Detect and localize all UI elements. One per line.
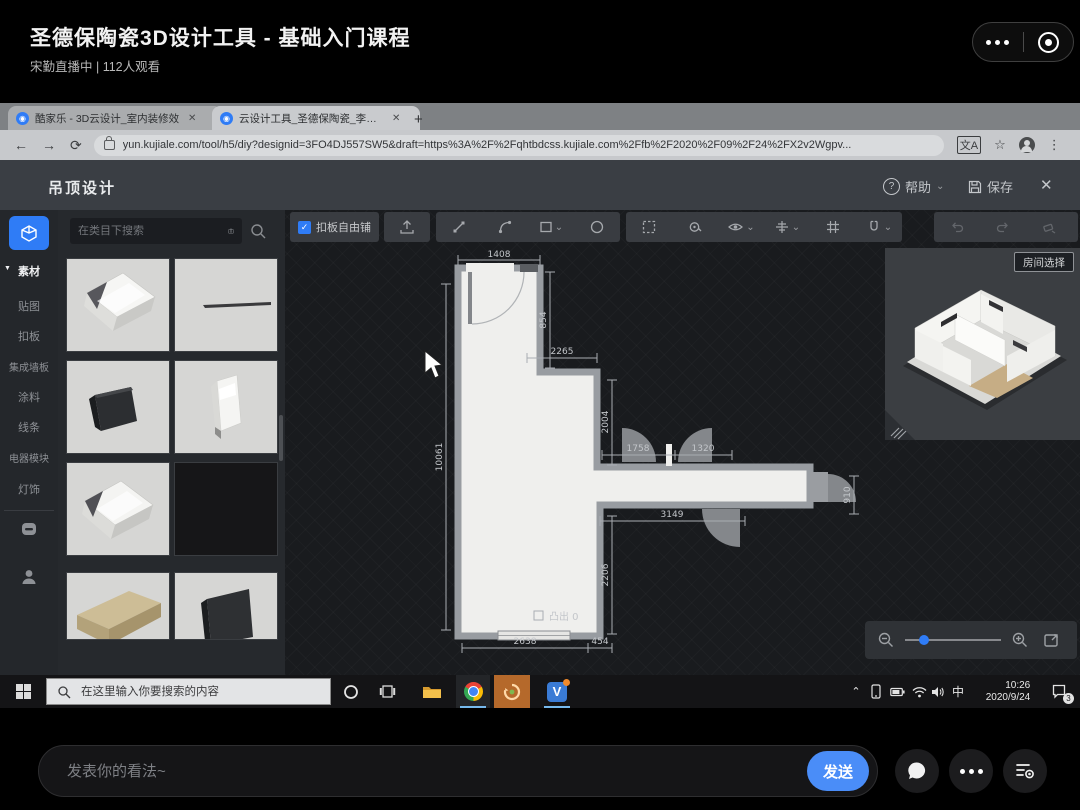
danmaku-list-eye-icon xyxy=(1014,761,1036,781)
kujiale-client-icon xyxy=(502,682,522,702)
more-actions-button[interactable] xyxy=(949,749,993,793)
sidebar-item-electric[interactable]: 电器模块 xyxy=(0,450,58,465)
browser-tab-2-active[interactable]: ◉ 云设计工具_圣德保陶瓷_李凡-保 ✕ xyxy=(212,106,420,130)
sidebar-item-material[interactable]: ▼ 素材 xyxy=(0,263,58,279)
back-button[interactable]: ← xyxy=(14,137,28,153)
material-thumb-black-swatch[interactable] xyxy=(174,462,278,556)
chevron-down-icon[interactable]: ⌄ xyxy=(792,222,800,233)
snap-magnet-button[interactable]: ⌄ xyxy=(856,212,902,242)
clock-date: 2020/9/24 xyxy=(986,692,1031,704)
tray-wifi-icon[interactable] xyxy=(910,675,928,708)
3d-preview-panel[interactable]: 房间选择 xyxy=(885,248,1080,440)
kujiale-favicon: ◉ xyxy=(16,112,29,125)
more-icon xyxy=(960,769,983,774)
svg-text:1408: 1408 xyxy=(488,250,511,260)
sidebar-item-molding[interactable]: 线条 xyxy=(0,419,58,435)
miniprogram-capsule xyxy=(972,22,1074,62)
help-icon: ? xyxy=(883,178,900,195)
profile-avatar[interactable] xyxy=(1019,137,1035,153)
clear-selection-button[interactable] xyxy=(1026,212,1072,242)
sidebar-item-label: 贴图 xyxy=(18,301,40,313)
chat-bubble-icon xyxy=(906,760,928,782)
svg-text:2638: 2638 xyxy=(514,637,537,647)
freelay-toggle[interactable]: ✓ 扣板自由铺 xyxy=(290,212,379,242)
arc-tool-button[interactable] xyxy=(482,212,528,242)
help-label: 帮助 xyxy=(905,177,931,196)
materials-panel: ◀ 1 /250 页 ▶ xyxy=(58,210,285,675)
sidebar-item-lighting[interactable]: 灯饰 xyxy=(0,481,58,497)
chevron-down-icon[interactable]: ⌄ xyxy=(555,222,563,233)
svg-text:凸出 0: 凸出 0 xyxy=(549,610,579,623)
sidebar-item-label: 灯饰 xyxy=(18,484,40,496)
door-opening-top xyxy=(466,263,514,273)
taskbar-clock[interactable]: 10:26 2020/9/24 xyxy=(975,675,1041,708)
notification-badge: 3 xyxy=(1063,693,1074,704)
material-thumb-dark-board[interactable] xyxy=(174,572,278,640)
upload-button[interactable] xyxy=(384,212,430,242)
mouse-cursor xyxy=(423,350,445,380)
fit-view-icon[interactable] xyxy=(1043,631,1061,649)
forward-button[interactable]: → xyxy=(42,137,56,153)
measure-tool-button[interactable] xyxy=(672,212,718,242)
kujiale-client-button[interactable] xyxy=(494,675,530,708)
ime-indicator[interactable]: 中 xyxy=(948,675,968,708)
zoom-slider[interactable] xyxy=(905,639,1001,641)
material-thumb-dark-panel[interactable] xyxy=(66,360,170,454)
search-icon[interactable] xyxy=(250,223,267,240)
svg-text:2206: 2206 xyxy=(601,563,611,586)
user-icon[interactable] xyxy=(20,568,38,586)
url-field[interactable]: yun.kujiale.com/tool/h5/diy?designid=3FO… xyxy=(94,135,944,156)
tool-close-button[interactable]: ✕ xyxy=(1040,176,1053,194)
chrome-icon xyxy=(464,682,483,701)
zoom-control-bar xyxy=(865,621,1077,659)
search-input[interactable] xyxy=(70,225,228,237)
tray-battery-icon[interactable] xyxy=(888,675,906,708)
tool-title: 吊顶设计 xyxy=(48,177,116,198)
draw-tools-group: ⌄ xyxy=(436,212,620,242)
cube-3d-icon xyxy=(20,224,38,242)
svg-text:1320: 1320 xyxy=(692,444,715,454)
door-swing-bottom xyxy=(702,509,740,547)
sidebar-item-label: 集成墙板 xyxy=(9,363,49,374)
rectangle-tool-button[interactable]: ⌄ xyxy=(528,212,574,242)
left-rail: ▼ 素材 贴图 扣板 集成墙板 涂料 线条 电器模块 灯饰 xyxy=(0,210,58,675)
material-thumb-crown-molding[interactable] xyxy=(66,258,170,352)
floorplan-drawing[interactable]: 1408 854 2265 2004 10061 1758 1320 910 3… xyxy=(430,248,860,673)
tray-expand-chevron[interactable]: ⌃ xyxy=(848,675,864,708)
sidebar-item-paint[interactable]: 涂料 xyxy=(0,389,58,405)
reload-button[interactable]: ⟳ xyxy=(70,137,82,154)
comment-input-bar[interactable]: 发送 xyxy=(38,745,878,797)
live-course-title: 圣德保陶瓷3D设计工具 - 基础入门课程 xyxy=(30,22,411,52)
screen: 圣德保陶瓷3D设计工具 - 基础入门课程 宋勤直播中 | 112人观看 ◉ 酷家… xyxy=(0,0,1080,810)
tool-header: 吊顶设计 ? 帮助 ⌄ 保存 ✕ xyxy=(0,160,1080,210)
taskbar-search-box[interactable] xyxy=(46,678,331,705)
chrome-button[interactable] xyxy=(456,675,490,708)
browser-tabstrip: ◉ 酷家乐 - 3D云设计_室内装修效 ✕ ◉ 云设计工具_圣德保陶瓷_李凡-保… xyxy=(0,103,1080,130)
preview-resize-handle[interactable] xyxy=(885,410,915,440)
svg-text:454: 454 xyxy=(591,637,608,647)
svg-text:2265: 2265 xyxy=(551,347,574,357)
zoom-slider-thumb[interactable] xyxy=(919,635,929,645)
url-text: yun.kujiale.com/tool/h5/diy?designid=3FO… xyxy=(123,139,852,151)
svg-text:10061: 10061 xyxy=(435,443,445,472)
material-thumb-thin-line[interactable] xyxy=(174,258,278,352)
tray-phone-icon[interactable] xyxy=(868,675,884,708)
v-app-icon: V xyxy=(547,682,567,702)
zoom-out-icon[interactable] xyxy=(877,631,895,649)
chat-toggle-button[interactable] xyxy=(895,749,939,793)
svg-text:1758: 1758 xyxy=(627,444,650,454)
live-status: 宋勤直播中 | 112人观看 xyxy=(30,56,160,75)
circle-tool-button[interactable] xyxy=(574,212,620,242)
history-tools-group xyxy=(934,212,1078,242)
save-label: 保存 xyxy=(987,177,1013,196)
rail-divider xyxy=(4,510,54,511)
tab-label: 云设计工具_圣德保陶瓷_李凡-保 xyxy=(239,111,384,126)
view-tools-group: ⌄ ⌄ ⌄ xyxy=(626,212,902,242)
design-canvas[interactable]: ✓ 扣板自由铺 ⌄ xyxy=(285,210,1080,675)
door-block-end xyxy=(810,472,828,502)
chevron-down-icon: ⌄ xyxy=(936,181,944,192)
v-app-button[interactable]: V xyxy=(540,675,574,708)
visibility-button[interactable]: ⌄ xyxy=(718,212,764,242)
task-view-button[interactable] xyxy=(374,675,400,708)
marquee-select-button[interactable] xyxy=(626,212,672,242)
sidebar-item-panel[interactable]: 扣板 xyxy=(0,328,58,344)
category-search-box[interactable] xyxy=(70,218,242,244)
chevron-down-icon[interactable]: ⌄ xyxy=(884,222,892,233)
material-thumb-baseboard[interactable] xyxy=(174,360,278,454)
translate-icon[interactable]: 文A xyxy=(957,136,981,154)
tab-close-icon[interactable]: ✕ xyxy=(392,113,400,124)
file-explorer-button[interactable] xyxy=(416,675,448,708)
kujiale-favicon: ◉ xyxy=(220,112,233,125)
more-menu-button[interactable] xyxy=(973,23,1023,61)
svg-text:3149: 3149 xyxy=(661,510,684,520)
comment-input[interactable] xyxy=(65,762,807,781)
sidebar-item-label: 电器模块 xyxy=(9,454,49,465)
search-icon xyxy=(57,685,71,699)
panel-scrollbar[interactable] xyxy=(279,415,283,461)
material-thumb-wood-plank[interactable] xyxy=(66,572,170,640)
danmaku-toggle-button[interactable] xyxy=(1003,749,1047,793)
browser-tab-1[interactable]: ◉ 酷家乐 - 3D云设计_室内装修效 ✕ xyxy=(8,106,222,130)
more-icon xyxy=(986,40,1009,45)
save-button[interactable]: 保存 xyxy=(968,177,1013,196)
tray-volume-icon[interactable] xyxy=(930,675,946,708)
chevron-down-icon[interactable]: ⌄ xyxy=(746,222,754,233)
sidebar-item-label: 素材 xyxy=(18,266,40,278)
svg-text:854: 854 xyxy=(539,311,549,328)
send-button[interactable]: 发送 xyxy=(807,751,869,791)
taskbar-search-input[interactable] xyxy=(79,685,330,699)
browser-menu-icon[interactable]: ⋮ xyxy=(1048,137,1061,153)
sidebar-item-label: 线条 xyxy=(18,422,40,434)
caret-down-icon: ▼ xyxy=(4,265,11,272)
bookmark-star-icon[interactable]: ☆ xyxy=(994,137,1006,153)
sidebar-item-label: 扣板 xyxy=(18,331,40,343)
notification-center-button[interactable]: 3 xyxy=(1046,675,1074,708)
exit-button[interactable] xyxy=(1024,23,1074,61)
window-top xyxy=(520,264,538,272)
clock-time: 10:26 xyxy=(986,680,1031,692)
svg-text:910: 910 xyxy=(843,486,853,503)
tab-close-icon[interactable]: ✕ xyxy=(188,113,196,124)
door-leaf xyxy=(468,272,472,324)
browser-addressbar: ← → ⟳ yun.kujiale.com/tool/h5/diy?design… xyxy=(0,130,1080,160)
undo-button[interactable] xyxy=(934,212,980,242)
svg-text:2004: 2004 xyxy=(601,410,611,433)
new-tab-button[interactable]: + xyxy=(414,111,423,128)
image-search-camera-icon[interactable] xyxy=(228,225,234,237)
sidebar-item-label: 涂料 xyxy=(18,392,40,404)
upload-tool-group xyxy=(384,212,430,242)
tab-label: 酷家乐 - 3D云设计_室内装修效 xyxy=(35,111,180,126)
line-tool-button[interactable] xyxy=(436,212,482,242)
windows-taskbar: V ⌃ 中 10:26 2020/9/24 3 xyxy=(0,675,1080,708)
align-button[interactable]: ⌄ xyxy=(764,212,810,242)
checkbox-checked-icon[interactable]: ✓ xyxy=(298,221,311,234)
grid-button[interactable] xyxy=(810,212,856,242)
package-icon[interactable] xyxy=(20,520,38,538)
lock-icon xyxy=(104,140,115,150)
material-thumb-crown-molding-alt[interactable] xyxy=(66,462,170,556)
room-select-button[interactable]: 房间选择 xyxy=(1014,252,1074,272)
start-button[interactable] xyxy=(8,675,38,708)
zoom-in-icon[interactable] xyxy=(1011,631,1029,649)
material-mode-button[interactable] xyxy=(9,216,49,250)
freelay-label: 扣板自由铺 xyxy=(316,219,371,235)
sidebar-item-wallboard[interactable]: 集成墙板 xyxy=(0,359,58,374)
cortana-button[interactable] xyxy=(338,675,364,708)
circle-dot-icon xyxy=(1038,32,1059,53)
redo-button[interactable] xyxy=(980,212,1026,242)
save-icon xyxy=(968,180,982,194)
sidebar-item-texture[interactable]: 贴图 xyxy=(0,298,58,314)
help-menu[interactable]: ? 帮助 ⌄ xyxy=(883,177,944,196)
